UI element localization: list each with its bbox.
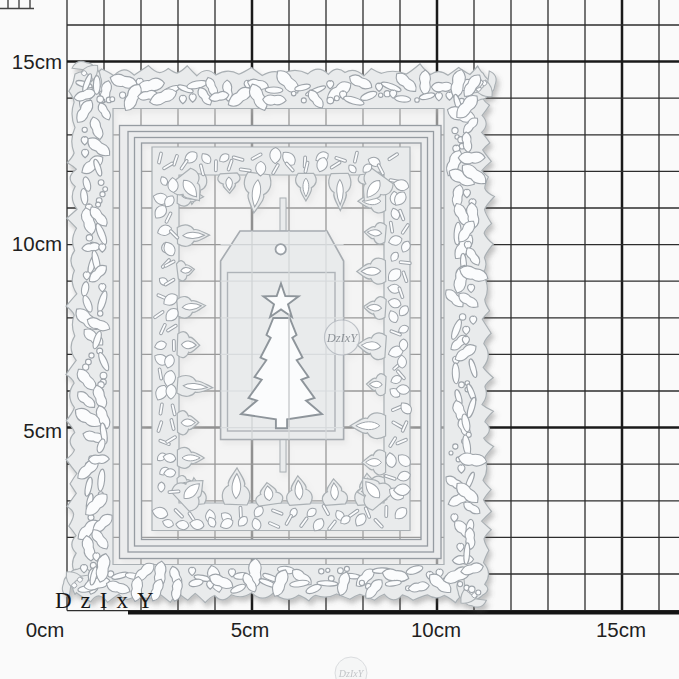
svg-text:0cm: 0cm xyxy=(26,618,65,641)
svg-text:DzIxY: DzIxY xyxy=(55,588,163,613)
svg-text:5cm: 5cm xyxy=(231,618,270,641)
svg-text:DzIxY: DzIxY xyxy=(326,331,360,345)
svg-text:5cm: 5cm xyxy=(23,419,62,442)
svg-text:15cm: 15cm xyxy=(596,618,646,641)
svg-text:DzIxY: DzIxY xyxy=(338,668,365,679)
svg-text:15cm: 15cm xyxy=(12,50,62,73)
svg-text:10cm: 10cm xyxy=(411,618,461,641)
svg-text:10cm: 10cm xyxy=(12,232,62,255)
